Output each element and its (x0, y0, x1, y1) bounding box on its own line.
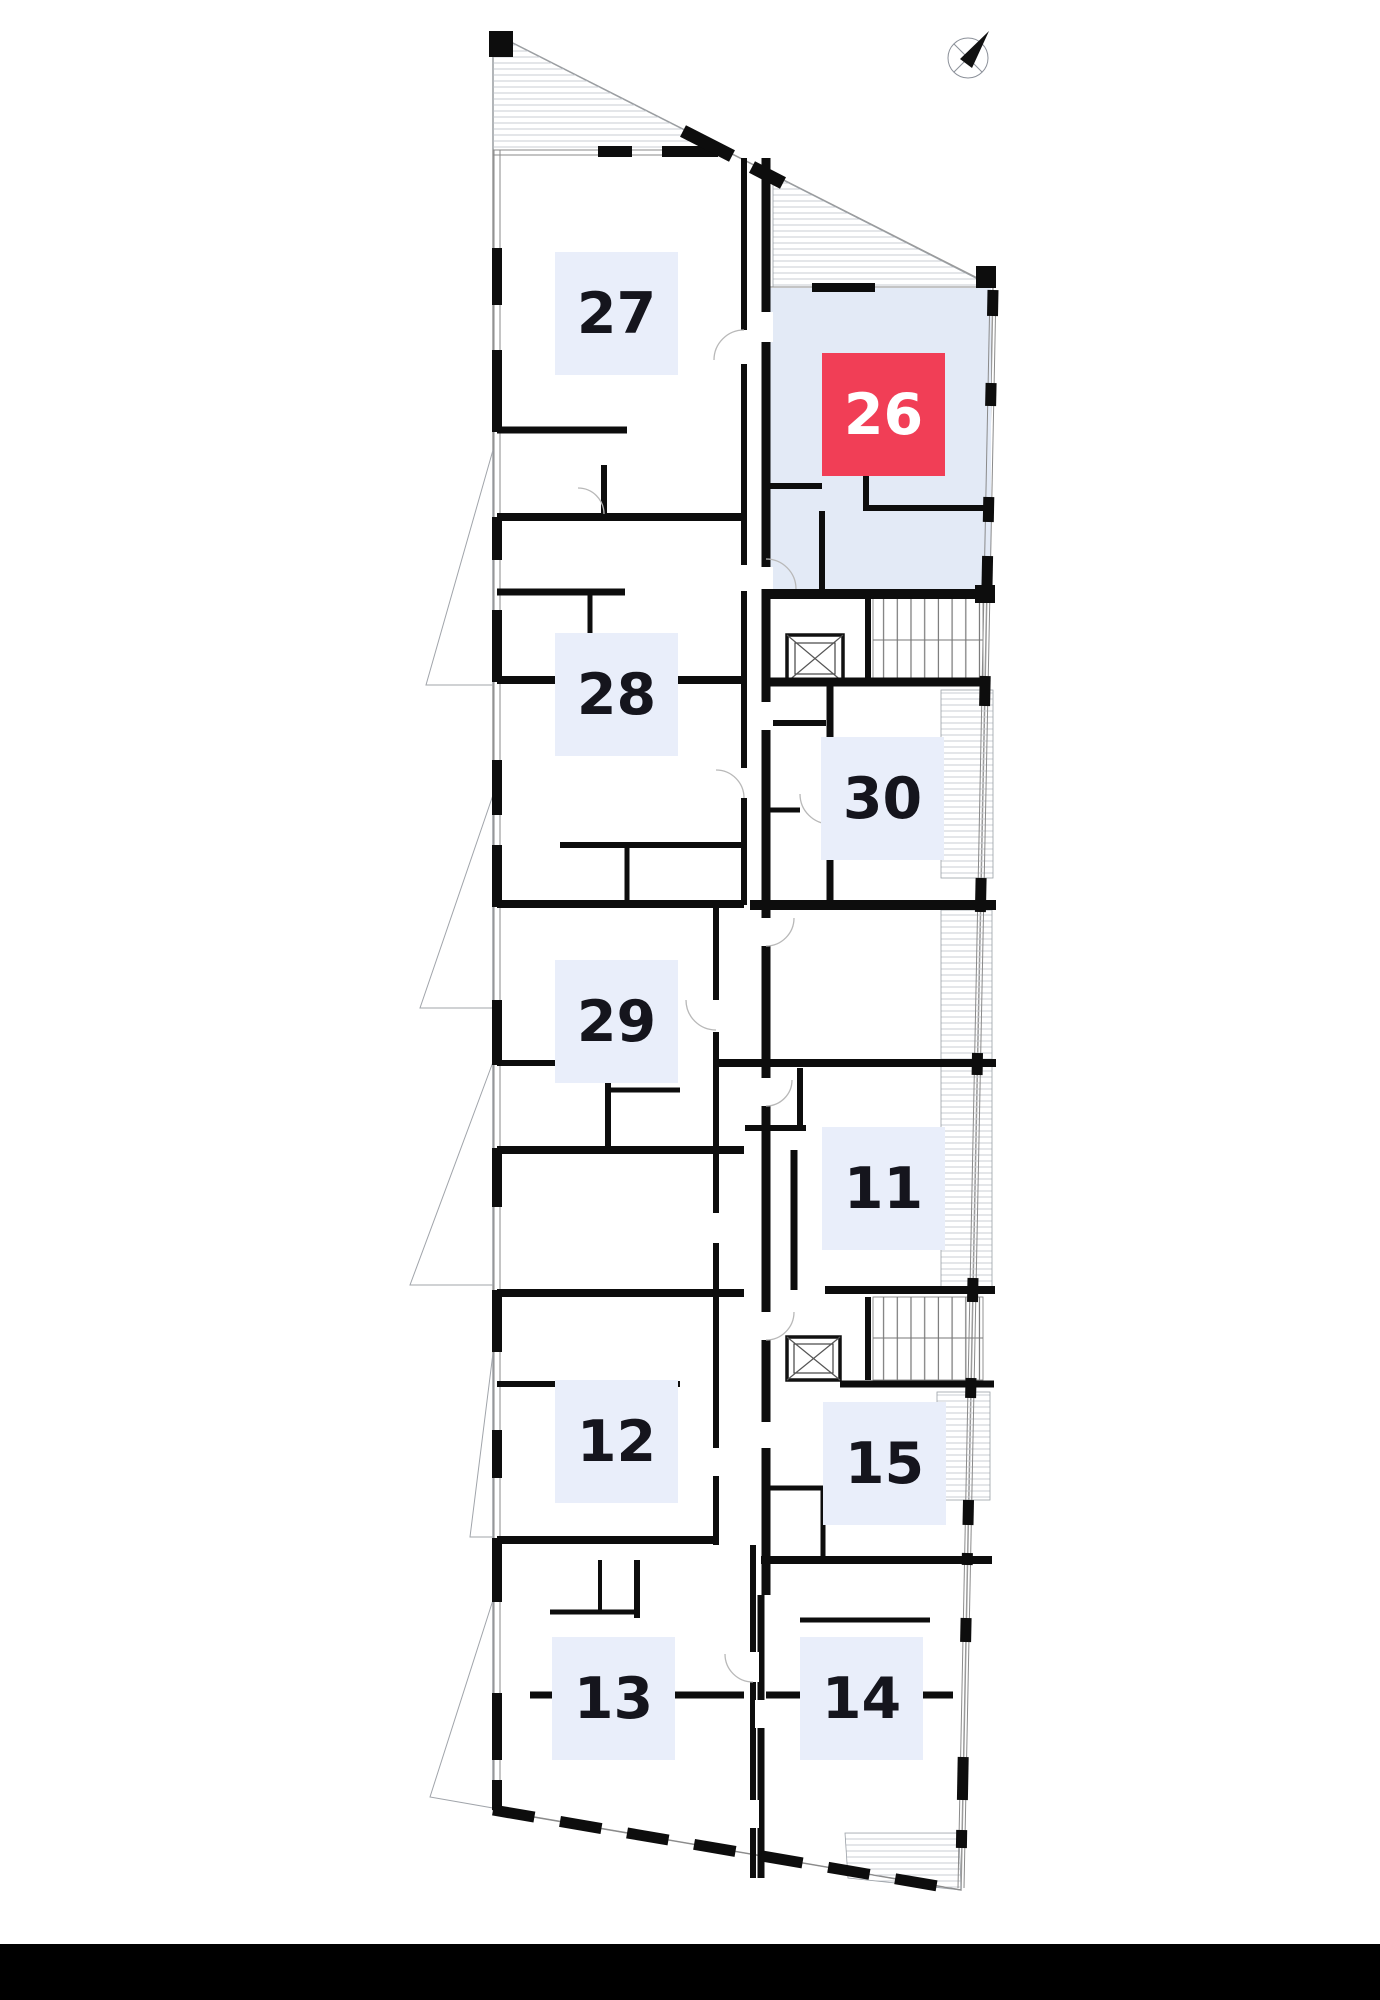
unit-badge-14[interactable]: 14 (800, 1637, 923, 1760)
unit-badge-27[interactable]: 27 (555, 252, 678, 375)
unit-badge-12[interactable]: 12 (555, 1380, 678, 1503)
floor-plan-page: 27262830291112151314 (0, 0, 1380, 2000)
stairs-icon-upper (873, 598, 983, 682)
unit-badge-28[interactable]: 28 (555, 633, 678, 756)
unit-badge-29[interactable]: 29 (555, 960, 678, 1083)
unit-badge-15[interactable]: 15 (823, 1402, 946, 1525)
unit-badge-26[interactable]: 26 (822, 353, 945, 476)
bottom-bar (0, 1944, 1380, 2000)
left-balconies (410, 450, 493, 1808)
unit-badge-30[interactable]: 30 (821, 737, 944, 860)
compass-icon (948, 31, 989, 78)
unit-badge-13[interactable]: 13 (552, 1637, 675, 1760)
stairs-icon-lower (873, 1297, 983, 1380)
elevator-icon-lower (787, 1337, 840, 1380)
unit-badge-11[interactable]: 11 (822, 1127, 945, 1250)
floor-plan-drawing (0, 0, 1380, 2000)
elevator-icon-upper (787, 635, 843, 682)
